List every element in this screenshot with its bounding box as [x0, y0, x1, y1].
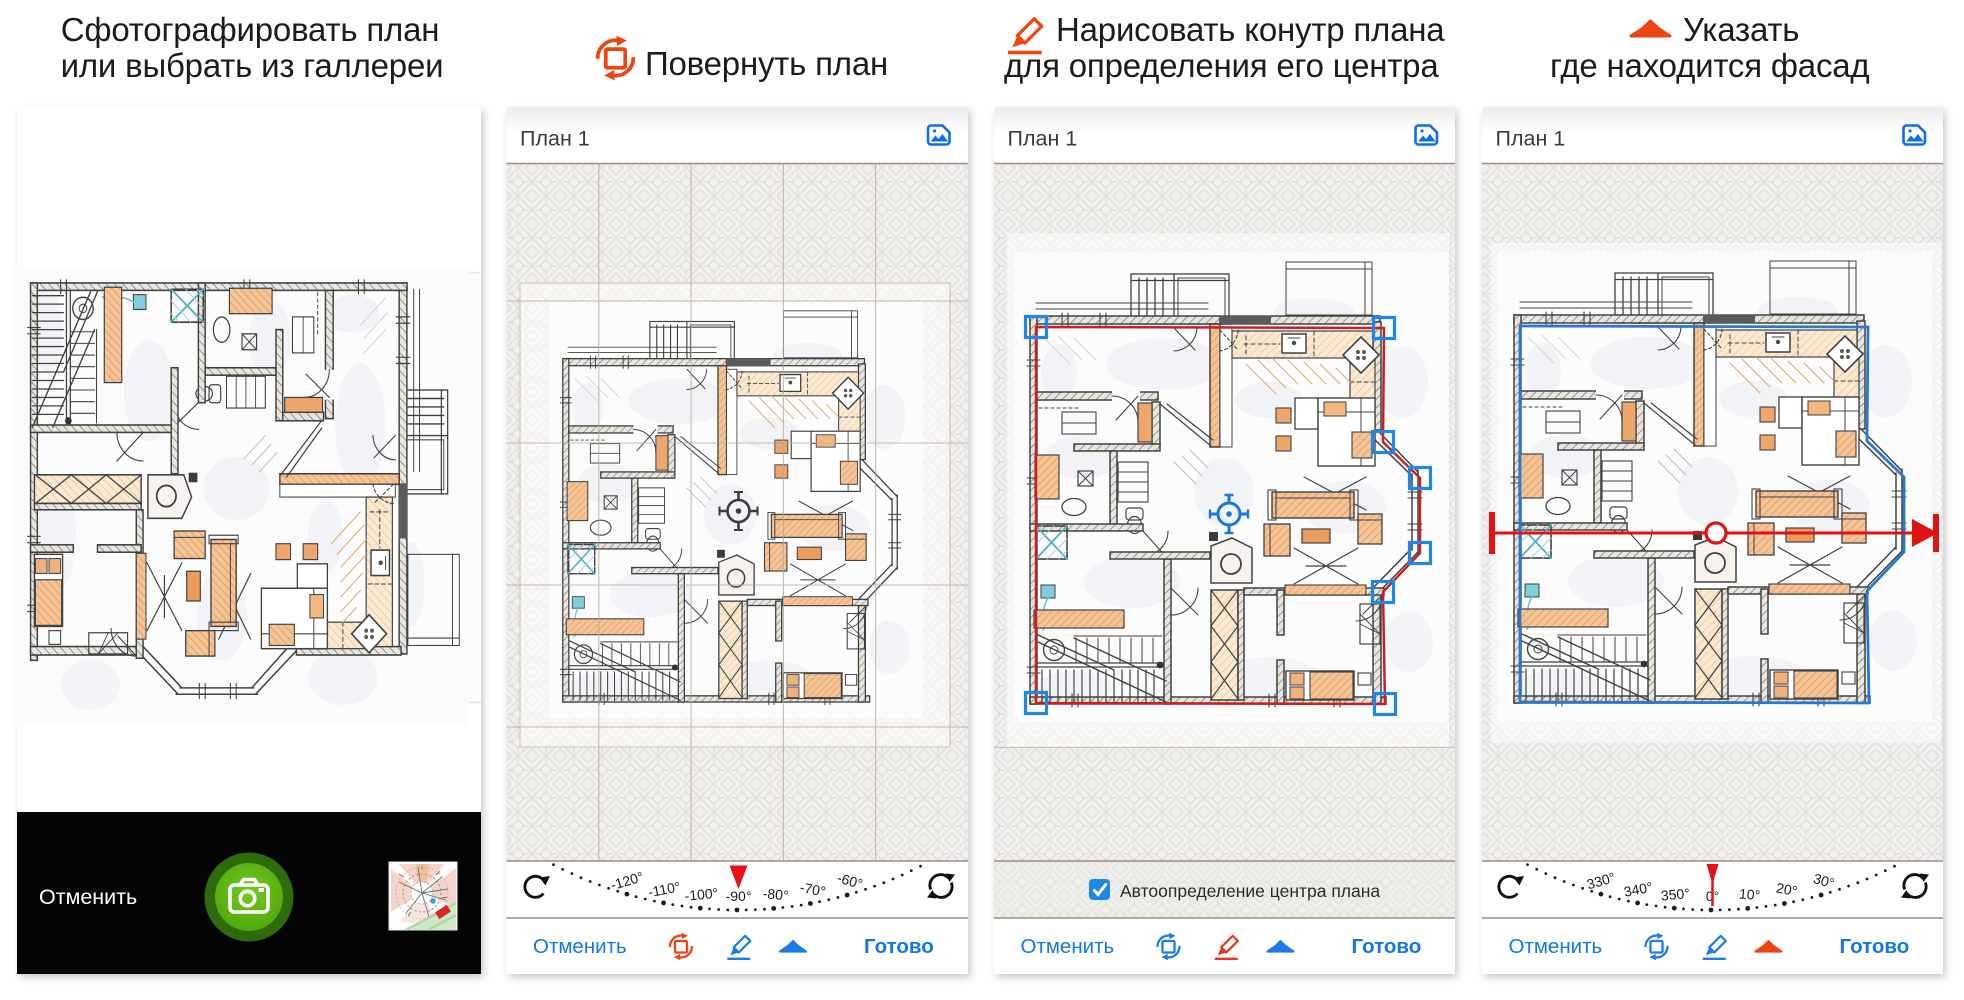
svg-text:-80°: -80° [762, 885, 789, 903]
svg-text:Отменить: Отменить [39, 885, 137, 909]
svg-text:Готово: Готово [1840, 935, 1910, 958]
svg-text:для определения его центра: для определения его центра [1004, 47, 1439, 84]
svg-text:10°: 10° [1738, 885, 1761, 903]
svg-text:Указать: Указать [1683, 11, 1799, 48]
svg-text:Готово: Готово [864, 935, 934, 958]
svg-text:-90°: -90° [726, 888, 752, 904]
svg-text:-100°: -100° [684, 885, 719, 904]
svg-text:Сфотографировать план: Сфотографировать план [61, 11, 440, 48]
svg-text:План 1: План 1 [1496, 127, 1566, 151]
svg-text:План 1: План 1 [520, 127, 590, 151]
svg-text:Отменить: Отменить [533, 935, 627, 958]
svg-text:где находится фасад: где находится фасад [1550, 47, 1869, 84]
svg-text:Автоопределение центра плана: Автоопределение центра плана [1120, 881, 1380, 901]
svg-text:Отменить: Отменить [1021, 935, 1115, 958]
svg-text:Отменить: Отменить [1509, 935, 1603, 958]
svg-text:Готово: Готово [1352, 935, 1422, 958]
svg-text:План 1: План 1 [1008, 127, 1078, 151]
svg-text:или выбрать из галлереи: или выбрать из галлереи [61, 47, 444, 84]
svg-text:Нарисовать конутр плана: Нарисовать конутр плана [1056, 11, 1445, 48]
svg-text:Повернуть план: Повернуть план [645, 45, 888, 82]
svg-text:350°: 350° [1660, 885, 1690, 904]
